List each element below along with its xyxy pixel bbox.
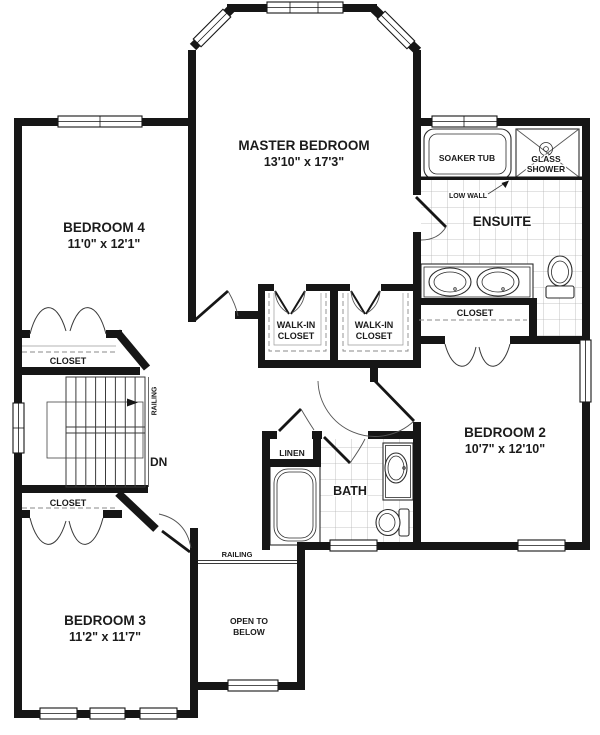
linen-door (279, 409, 314, 431)
master-bedroom-door (195, 291, 238, 320)
soaker-tub-label: SOAKER TUB (439, 153, 495, 163)
window (518, 540, 565, 551)
window (40, 708, 77, 719)
floor-plan-page: MASTER BEDROOM 13'10" x 17'3" BEDROOM 4 … (0, 0, 600, 735)
linen-label: LINEN (279, 448, 305, 458)
closet-bedroom4-label: CLOSET (50, 356, 87, 366)
bedroom3-closet-bifold (30, 518, 103, 544)
low-wall-label: LOW WALL (449, 193, 488, 200)
bedroom2-door (318, 381, 414, 436)
window (330, 540, 377, 551)
staircase (47, 377, 149, 487)
master-bedroom-dims: 13'10" x 17'3" (264, 155, 344, 169)
landing-railing (198, 561, 297, 564)
bedroom3-dims: 11'2" x 11'7" (69, 630, 141, 644)
closet-bedroom2-label: CLOSET (457, 308, 494, 318)
bedroom3-label: BEDROOM 3 (64, 613, 146, 628)
window (228, 680, 278, 691)
walk-in-closet-left-label-1: WALK-IN (277, 320, 316, 330)
bedroom4-closet-bifold (30, 308, 106, 334)
floor-plan: MASTER BEDROOM 13'10" x 17'3" BEDROOM 4 … (0, 0, 600, 735)
bedroom4-label: BEDROOM 4 (63, 220, 145, 235)
walk-in-closet-right-door (351, 291, 380, 314)
window (432, 116, 497, 127)
bedroom2-label: BEDROOM 2 (464, 425, 546, 440)
bath-tub (270, 464, 320, 545)
bedroom2-dims: 10'7" x 12'10" (465, 442, 545, 456)
glass-shower-label-1: GLASS (531, 154, 561, 164)
stair-direction-arrow (127, 399, 138, 407)
bay-window-left (193, 9, 230, 46)
closet-bedroom3-label: CLOSET (50, 498, 87, 508)
window (13, 403, 24, 453)
walk-in-closet-right-label-2: CLOSET (356, 331, 393, 341)
walk-in-closet-left-door (275, 291, 305, 314)
stairs-down-label: DN (150, 455, 167, 469)
bath-toilet (376, 509, 409, 536)
bedroom3-door (159, 514, 191, 552)
walls (14, 4, 590, 718)
master-bedroom-label: MASTER BEDROOM (238, 138, 369, 153)
ensuite-vanity (421, 264, 533, 300)
window (267, 2, 343, 13)
railing-stairs-label: RAILING (152, 386, 159, 415)
walk-in-closet-right-label-1: WALK-IN (355, 320, 394, 330)
stair-treads (76, 377, 135, 487)
labels: MASTER BEDROOM 13'10" x 17'3" BEDROOM 4 … (50, 138, 565, 644)
bath-vanity (383, 443, 413, 500)
ensuite-toilet (546, 256, 574, 298)
window (90, 708, 125, 719)
open-to-below-label-2: BELOW (233, 627, 266, 637)
window (140, 708, 177, 719)
bedroom4-dims: 11'0" x 12'1" (68, 237, 141, 251)
bay-window-right (377, 11, 414, 48)
ensuite-label: ENSUITE (473, 214, 532, 229)
bath-label: BATH (333, 484, 367, 498)
window (58, 116, 142, 127)
window (580, 340, 591, 402)
glass-shower-label-2: SHOWER (527, 164, 565, 174)
low-wall (421, 177, 582, 181)
walk-in-closet-left-label-2: CLOSET (278, 331, 315, 341)
bedroom2-closet-bifold (445, 344, 510, 366)
railing-landing-label: RAILING (222, 550, 253, 559)
open-to-below-label-1: OPEN TO (230, 616, 268, 626)
